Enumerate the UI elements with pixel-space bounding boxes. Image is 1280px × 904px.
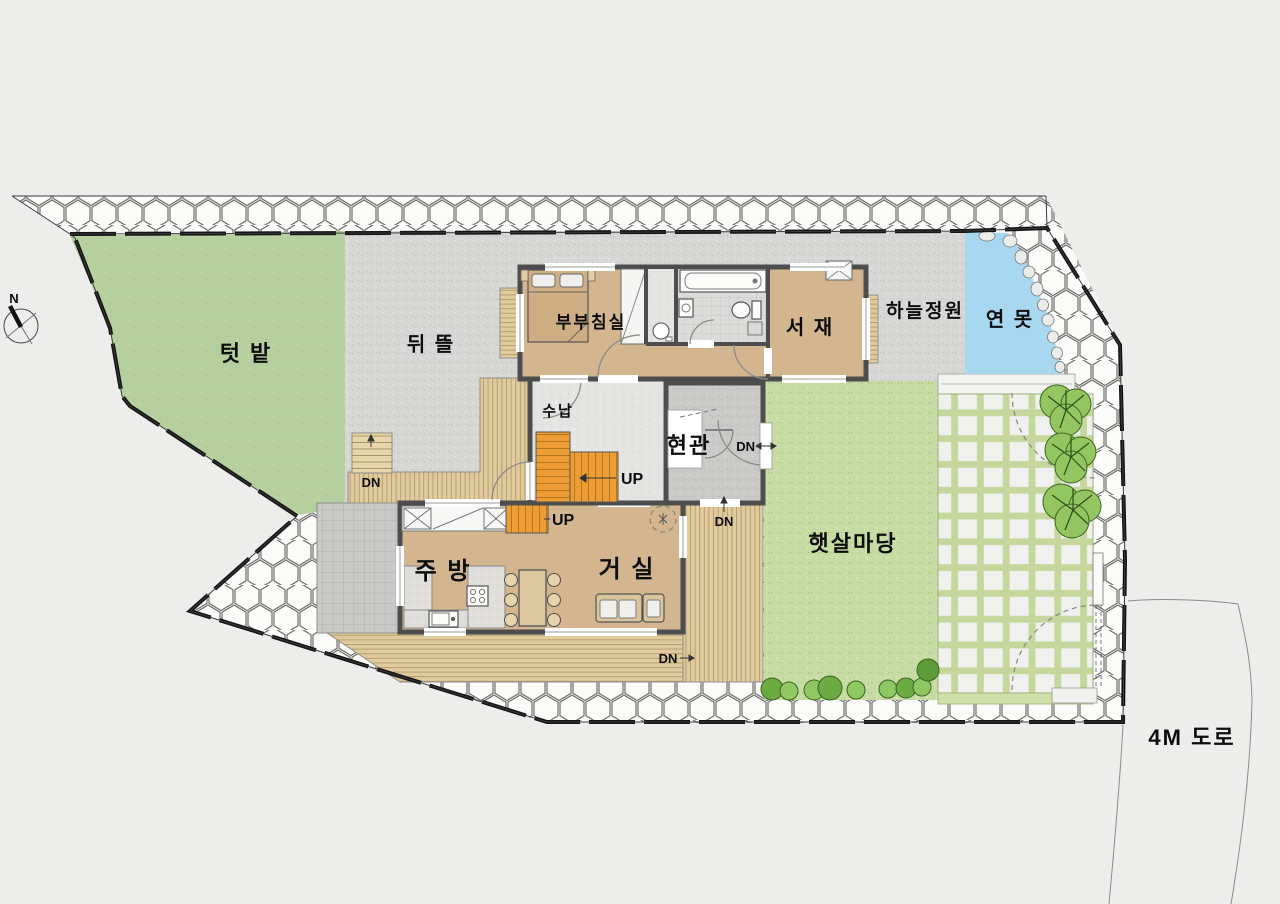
bathroom (676, 269, 768, 344)
exterior-stair-dn-label: DN (362, 475, 381, 490)
stair-up-label-lower: UP (552, 512, 575, 529)
bedroom-wing: 부부침실 서 재 (516, 261, 870, 383)
shrub-icon (761, 678, 783, 700)
floor-plan-page: DN (0, 0, 1280, 904)
kitchen-sink (429, 611, 458, 627)
shrub-icon (818, 676, 842, 700)
shrub-icon (879, 680, 897, 698)
entrance-label: 현관 (667, 433, 711, 458)
gate-leaf (1093, 553, 1103, 605)
storage-label: 수납 (542, 403, 574, 420)
vegetable-garden-label: 텃 밭 (220, 341, 273, 366)
toilet (732, 301, 761, 319)
dining-set (505, 570, 561, 627)
svg-text:DN: DN (715, 514, 734, 529)
kitchen-living-wing: UP 주 방 거 실 (396, 499, 687, 636)
road-label: 4M 도로 (1148, 725, 1235, 750)
stair-up-label-main: UP (621, 471, 644, 488)
stove-cooktop (467, 586, 488, 606)
bathtub (680, 270, 766, 292)
sky-garden-label: 하늘정원 (886, 300, 964, 322)
shrub-icon (917, 659, 939, 681)
kitchen-cabinets (402, 506, 510, 531)
shrub-icon (780, 682, 798, 700)
dining-table (519, 570, 546, 626)
svg-text:DN: DN (736, 439, 755, 454)
kitchen-label: 주 방 (415, 558, 472, 585)
north-label: N (9, 291, 18, 306)
powder-room (646, 269, 676, 344)
backyard-label: 뒤 뜰 (407, 333, 455, 356)
covered-deck (683, 503, 763, 682)
site-plan-drawing: DN (0, 0, 1280, 904)
bath-sink (679, 299, 693, 317)
pond-label: 연 못 (986, 308, 1034, 331)
terrace-tiles (317, 503, 400, 633)
sunny-yard-label: 햇살마당 (809, 531, 898, 556)
master-bedroom-label: 부부침실 (556, 312, 627, 332)
wardrobe (621, 269, 646, 344)
shrub-icon (847, 681, 865, 699)
living-room-label: 거 실 (599, 556, 656, 583)
svg-text:DN: DN (659, 651, 678, 666)
sofa-set (596, 594, 664, 622)
study-label: 서 재 (786, 316, 834, 339)
bedroom-side-deck (500, 288, 518, 358)
